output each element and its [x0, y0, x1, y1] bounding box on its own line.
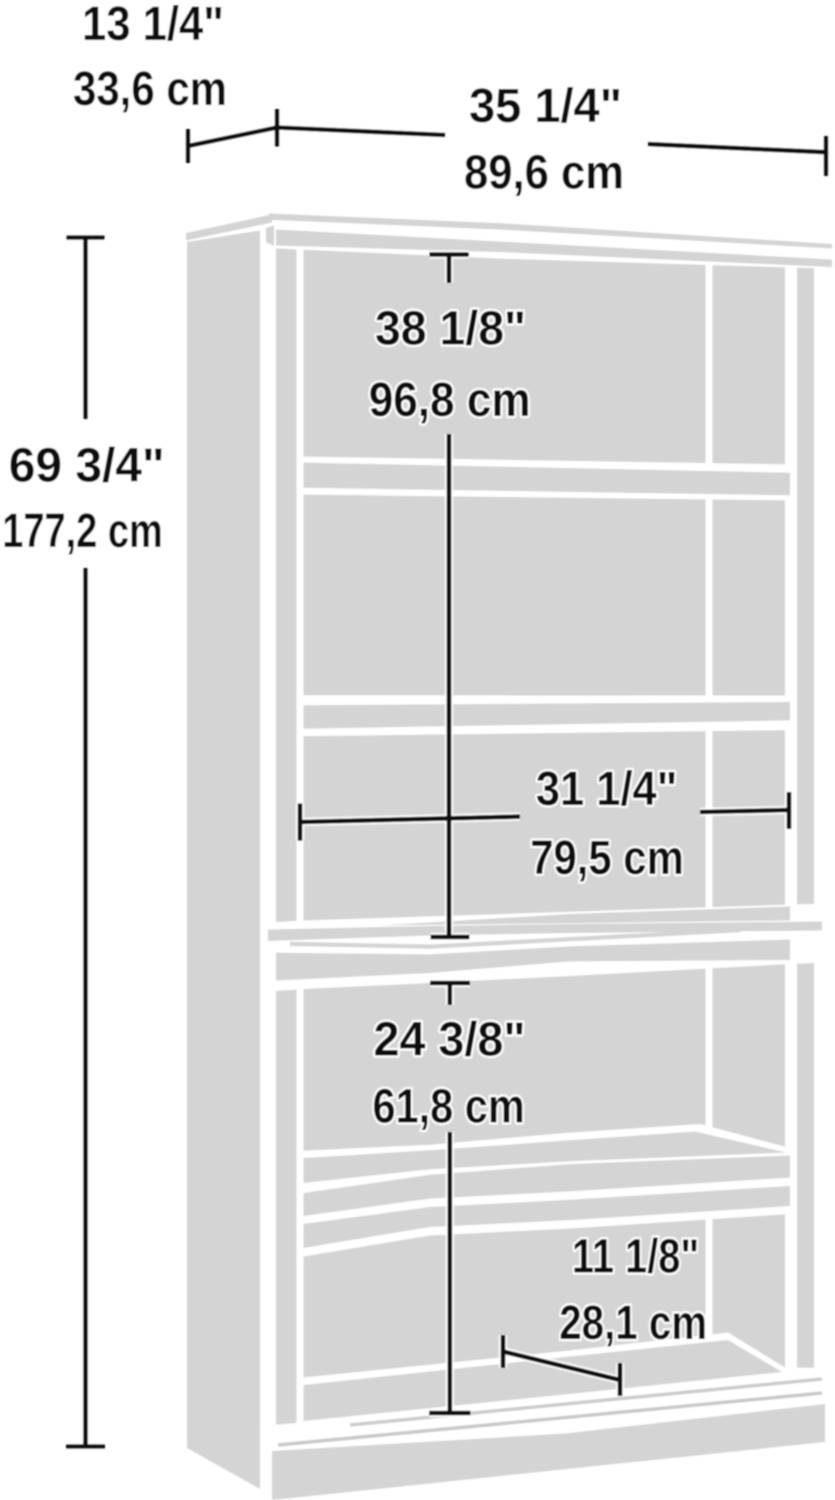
svg-text:61,8 cm: 61,8 cm	[373, 1081, 525, 1134]
svg-text:38 1/8": 38 1/8"	[375, 302, 526, 355]
svg-text:31 1/4": 31 1/4"	[536, 763, 678, 816]
svg-text:11 1/8": 11 1/8"	[572, 1231, 699, 1284]
svg-text:28,1 cm: 28,1 cm	[559, 1297, 707, 1350]
svg-text:33,6 cm: 33,6 cm	[73, 63, 227, 116]
svg-text:177,2 cm: 177,2 cm	[2, 505, 163, 558]
svg-text:96,8 cm: 96,8 cm	[369, 374, 531, 427]
svg-text:69 3/4": 69 3/4"	[9, 439, 165, 492]
svg-text:35 1/4": 35 1/4"	[469, 80, 622, 133]
svg-text:79,5 cm: 79,5 cm	[530, 832, 684, 885]
svg-text:89,6 cm: 89,6 cm	[464, 147, 624, 200]
svg-text:13 1/4": 13 1/4"	[82, 0, 224, 51]
svg-text:24 3/8": 24 3/8"	[374, 1014, 526, 1067]
